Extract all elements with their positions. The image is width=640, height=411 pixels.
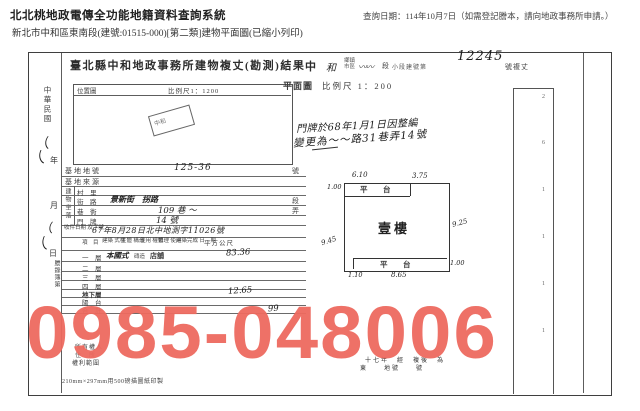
location-map-scale: 比例尺1：1200 xyxy=(168,85,219,95)
strip-mark: 2 xyxy=(542,94,545,100)
field-value-handwritten: 67年8月28日北中地測字11026號 xyxy=(92,225,224,236)
table-header-row: 項 目 建築 式樣 主體 構造 使用 權類 管理 使用 建築完成 日 期 平方公… xyxy=(62,237,306,251)
margin-month: 月 xyxy=(50,200,58,211)
watermark: 0985-048006 xyxy=(26,296,498,370)
margin-day: 日 xyxy=(49,248,57,259)
margin-year: 年 xyxy=(50,155,58,166)
plan-scale: 比例尺 1：200 xyxy=(322,80,393,92)
floor-room-label: 壹樓 xyxy=(378,218,410,237)
field-edge-label: 號 xyxy=(292,166,299,176)
use-type: 店舖 xyxy=(150,251,164,261)
paper-spec-note: 210mm×297mm用500磅描圖紙印製 xyxy=(62,376,164,385)
bottom-platform-label: 平 台 xyxy=(380,259,415,270)
handwritten-scribble: 〰〰 xyxy=(358,60,372,73)
dim-top-left: 6.10 xyxy=(352,171,368,179)
dim-left-small: 1.00 xyxy=(327,183,341,191)
rule xyxy=(410,184,411,196)
dim-bottom-left: 1.10 xyxy=(348,271,362,279)
location-map-label: 位置圖 xyxy=(77,85,97,95)
page: 北北桃地政電傳全功能地籍資料查詢系統 查詢日期：114年10月7日（如需登記謄本… xyxy=(0,0,640,411)
dim-bottom: 8.65 xyxy=(391,271,407,279)
document-title: 臺北縣中和地政事務所建物複丈(勘測)結果 xyxy=(70,57,305,73)
section-char: 段 xyxy=(382,61,389,71)
rule xyxy=(353,258,354,269)
area-value: 83.36 xyxy=(226,247,251,258)
rule xyxy=(73,95,291,96)
strip-mark: 1 xyxy=(542,234,545,240)
township-smalltext: 鄉鎮 市區 xyxy=(344,58,355,71)
strip-mark: 6 xyxy=(542,140,545,146)
margin-ledger: 謄錄簿第 xyxy=(52,260,61,288)
field-value-handwritten: 125-36 xyxy=(174,163,212,173)
survey-number: 12245 xyxy=(457,49,503,64)
query-date-note: 查詢日期：114年10月7日（如需登記謄本，請向地政事務所申請。） xyxy=(363,10,613,22)
rule xyxy=(583,53,584,393)
field-label: 基地地號 xyxy=(65,166,101,176)
subsection-label: 小段建號第 xyxy=(392,62,427,71)
dim-bottom-right: 1.00 xyxy=(450,259,464,267)
strip-mark: 1 xyxy=(542,328,545,334)
margin-era: 中華民國 xyxy=(42,86,53,124)
rule xyxy=(345,196,410,197)
dim-top-right: 3.75 xyxy=(412,172,428,180)
structure: 磚造 xyxy=(134,252,145,260)
col-header: 項 目 xyxy=(82,240,99,246)
strip-mark: 1 xyxy=(542,281,545,287)
plan-label: 平面圖 xyxy=(283,79,313,92)
col-header: 平方公尺 xyxy=(204,240,234,247)
strip-mark: 1 xyxy=(542,187,545,193)
field-value-handwritten: 景新街 拐路 xyxy=(110,194,158,205)
survey-suffix: 號複丈 xyxy=(505,62,529,72)
township-char2: 和 xyxy=(326,59,336,74)
top-platform-label: 平 台 xyxy=(360,184,395,195)
side-strip xyxy=(513,88,554,394)
township-char1: 中 xyxy=(305,58,316,74)
building-style: 本國式 xyxy=(106,250,129,261)
system-title: 北北桃地政電傳全功能地籍資料查詢系統 xyxy=(10,7,226,23)
document-subtitle: 新北市中和區東南段(建號:01515-000)[第二類]建物平面圖(已縮小列印) xyxy=(12,25,303,39)
